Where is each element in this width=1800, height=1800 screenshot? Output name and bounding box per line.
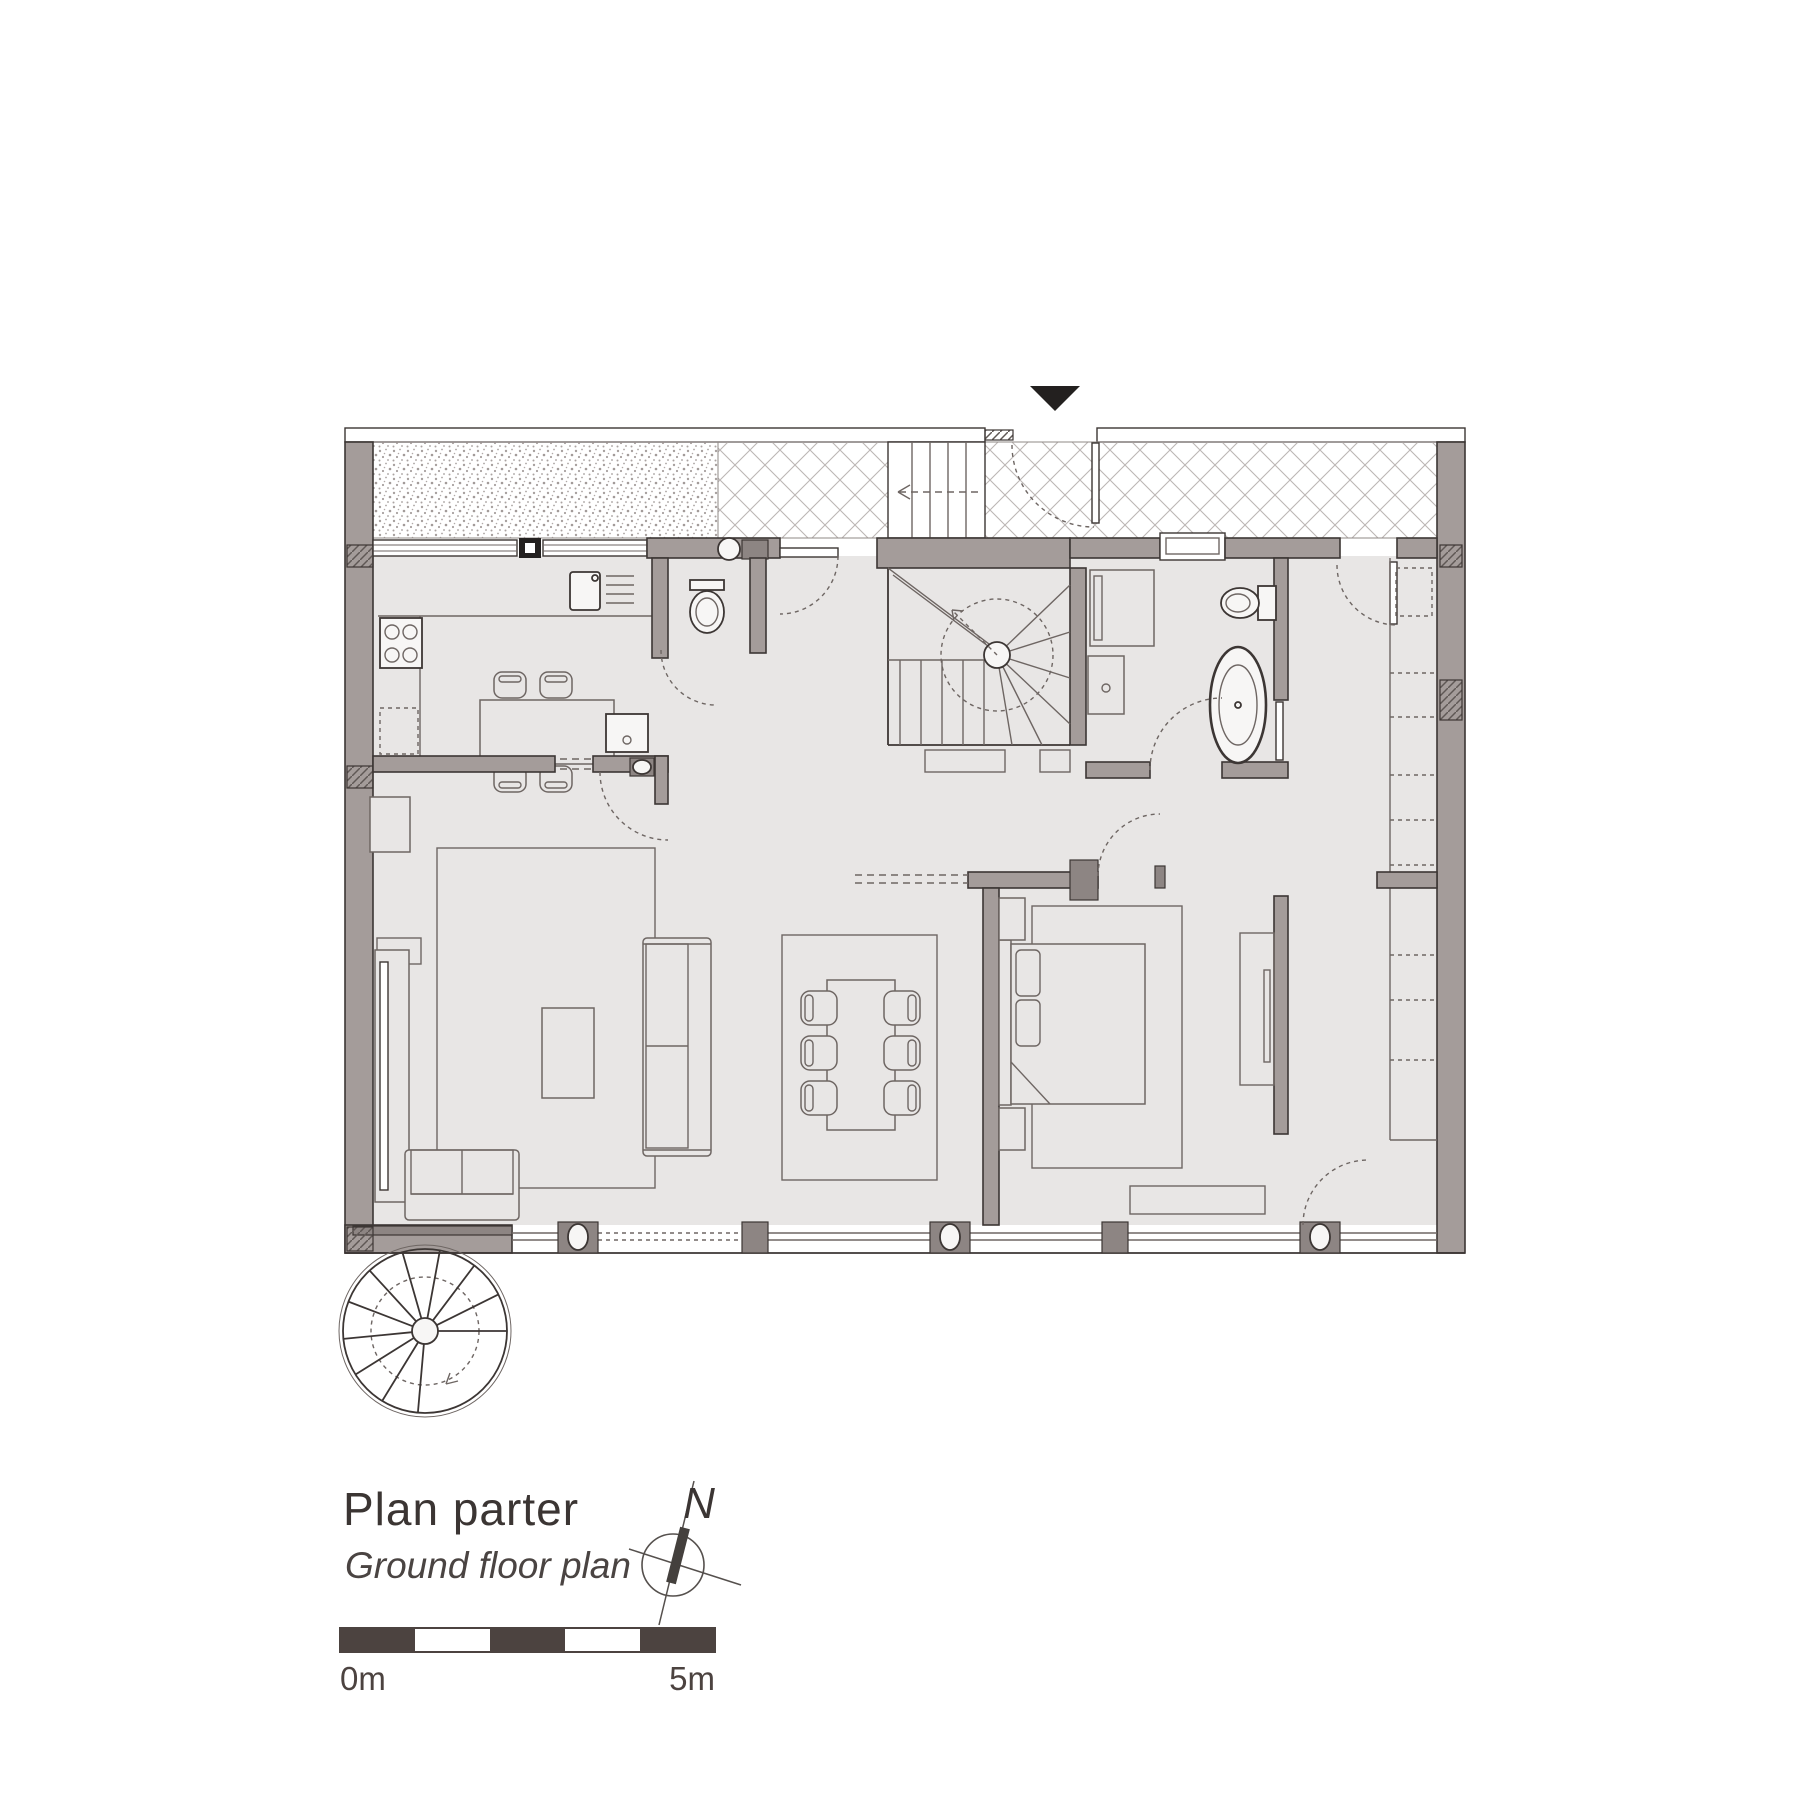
sofa-bottom (405, 1150, 519, 1220)
scale-bar: 0m 5m (340, 1628, 715, 1697)
double-bed (999, 940, 1145, 1105)
sofa-right (643, 938, 711, 1156)
vent-pipe (718, 538, 740, 560)
headboard (999, 940, 1011, 1105)
door-post (1070, 860, 1098, 900)
compass-needle (671, 1528, 685, 1583)
dressing-wall-stub (1377, 872, 1437, 888)
floor-plan-sheet: Plan parter Ground floor plan N 0m 5m (0, 0, 1800, 1800)
media-wall (1274, 896, 1288, 1134)
wc-toilet (690, 580, 724, 633)
coffee-table (542, 1008, 594, 1098)
scale-start-label: 0m (340, 1660, 386, 1697)
south-wall-inner-band (353, 1226, 512, 1235)
kitchen-sink (570, 572, 600, 610)
glazed-facade (512, 1233, 1437, 1240)
tv-screen (380, 962, 388, 1190)
shower-screen (1276, 702, 1283, 760)
entrance-sill (985, 430, 1013, 440)
kitchen-table (480, 700, 614, 764)
freestanding-bathtub (1210, 647, 1266, 763)
nightstand (999, 1108, 1025, 1150)
exterior-steps (888, 442, 985, 538)
front-boundary-wall (345, 428, 985, 442)
entrance-triangle-marker (1030, 386, 1080, 411)
nightstand (999, 898, 1025, 940)
gravel-area (373, 442, 718, 538)
washer-cabinet (1090, 570, 1154, 646)
stair-north-wall (877, 538, 1070, 568)
terrace-strip (345, 428, 1465, 538)
bathroom-window (1160, 533, 1225, 560)
tall-cabinet (370, 797, 410, 852)
north-compass: N (629, 1479, 741, 1625)
kitchen-window (373, 540, 517, 556)
bedroom-west-wall (983, 888, 999, 1225)
scale-segment (490, 1628, 565, 1652)
cooktop (380, 618, 422, 668)
north-letter: N (683, 1479, 715, 1528)
scale-segment (640, 1628, 715, 1652)
front-boundary-wall (1097, 428, 1465, 442)
paved-terrace (718, 442, 1437, 538)
entrance-door-leaf (1092, 443, 1099, 523)
sliding-glass-door (590, 1233, 745, 1240)
floor-plan-drawing: Plan parter Ground floor plan N 0m 5m (0, 0, 1800, 1800)
bathroom-toilet (1221, 586, 1276, 620)
wc-east-wall (750, 558, 766, 653)
bathroom-vanity (1088, 656, 1124, 714)
kitchen-window (543, 540, 647, 556)
scale-end-label: 5m (669, 1660, 715, 1697)
stair-east-wall (1070, 568, 1086, 745)
column (633, 760, 651, 774)
hall-washbasin (606, 714, 648, 752)
spiral-staircase (339, 1245, 511, 1417)
wc-west-wall (652, 558, 668, 658)
title-block: Plan parter Ground floor plan (343, 1483, 631, 1586)
plan-title: Plan parter (343, 1483, 579, 1535)
front-door-leaf (780, 548, 838, 557)
bathroom-east-partition (1274, 558, 1288, 700)
facade-columns (558, 1222, 1340, 1253)
plan-subtitle: Ground floor plan (345, 1545, 631, 1586)
scale-segment (340, 1628, 415, 1652)
